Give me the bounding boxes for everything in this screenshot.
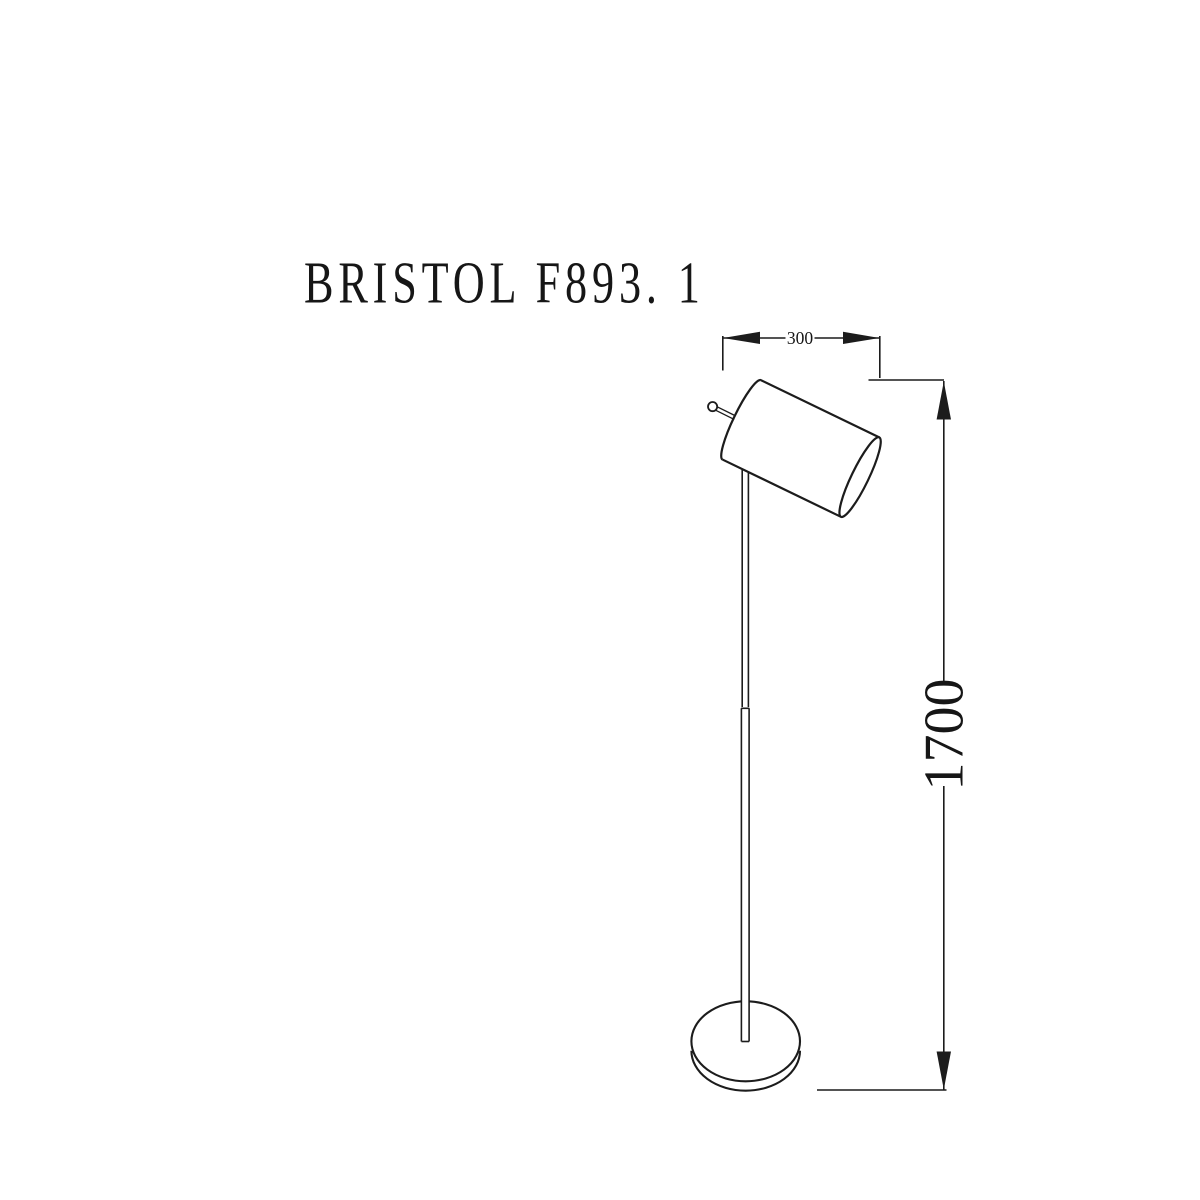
svg-text:1700: 1700 xyxy=(913,679,975,791)
svg-text:BRISTOL F893. 1: BRISTOL F893. 1 xyxy=(304,252,705,316)
svg-text:300: 300 xyxy=(787,328,814,348)
